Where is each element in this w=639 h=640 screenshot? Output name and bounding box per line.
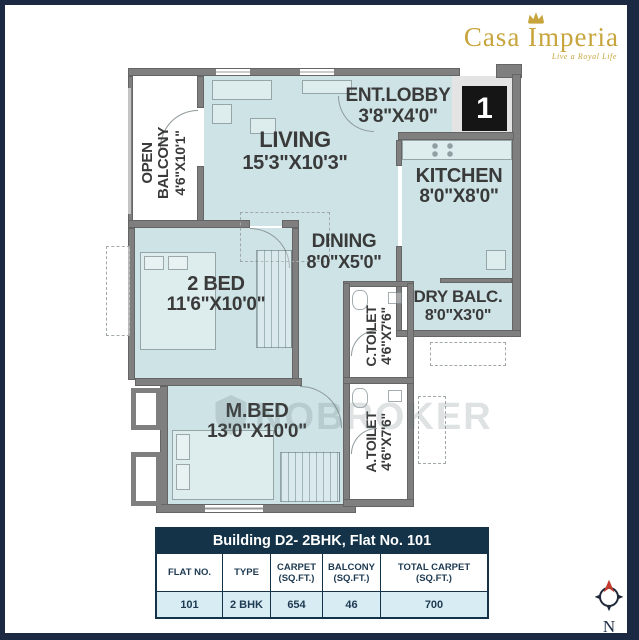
table-header-row: FLAT NO. TYPE CARPET (SQ.FT.) BALCONY (S… bbox=[157, 554, 487, 591]
table-title: Building D2- 2BHK, Flat No. 101 bbox=[157, 529, 487, 554]
wall-segment bbox=[343, 499, 414, 507]
room-dims: 3'8"X4'0" bbox=[328, 107, 468, 128]
unit-number-badge: 1 bbox=[462, 86, 507, 131]
room-name: ENT.LOBBY bbox=[328, 86, 468, 107]
window-segment bbox=[300, 69, 334, 75]
col-carpet: CARPET (SQ.FT.) bbox=[271, 554, 323, 591]
room-label-open-balcony: OPEN BALCONY 4'6"X10'1" bbox=[129, 108, 199, 218]
room-label-a-toilet: A.TOILET 4'6"X7'6" bbox=[359, 392, 399, 492]
room-dims: 8'0"X5'0" bbox=[284, 253, 404, 273]
val-total-carpet: 700 bbox=[381, 591, 487, 617]
furniture-armchair bbox=[212, 104, 232, 124]
room-dims: 15'3"X10'3" bbox=[215, 152, 375, 174]
stove-icon bbox=[428, 142, 458, 158]
compass: N bbox=[589, 578, 629, 637]
room-label-living: LIVING 15'3"X10'3" bbox=[215, 128, 375, 174]
furniture-pillow bbox=[176, 464, 190, 490]
room-passage bbox=[299, 286, 343, 386]
compass-icon bbox=[591, 601, 627, 618]
window-segment bbox=[216, 69, 250, 75]
col-flat-no: FLAT NO. bbox=[157, 554, 223, 591]
wall-segment bbox=[396, 330, 521, 337]
room-name: DINING bbox=[284, 232, 404, 253]
room-name: C.TOILET bbox=[364, 305, 379, 366]
room-dims: 11'6"X10'0" bbox=[136, 295, 296, 316]
page-frame: Casa Imperia Live a Royal Life bbox=[0, 0, 639, 640]
room-label-ent-lobby: ENT.LOBBY 3'8"X4'0" bbox=[328, 86, 468, 128]
duct-shaft bbox=[418, 396, 446, 464]
val-type: 2 BHK bbox=[223, 591, 271, 617]
room-label-c-toilet: C.TOILET 4'6"X7'6" bbox=[359, 286, 399, 386]
furniture-sofa bbox=[212, 80, 272, 100]
window-segment bbox=[205, 505, 263, 512]
col-balcony: BALCONY (SQ.FT.) bbox=[323, 554, 381, 591]
room-label-dining: DINING 8'0"X5'0" bbox=[284, 232, 404, 273]
room-dims: 4'6"X10'1" bbox=[173, 130, 188, 195]
room-label-mbed: M.BED 13'0"X10'0" bbox=[177, 400, 337, 443]
sink-icon bbox=[486, 250, 506, 270]
table-value-row: 101 2 BHK 654 46 700 bbox=[157, 591, 487, 617]
room-name: M.BED bbox=[177, 400, 337, 422]
duct-shaft bbox=[131, 388, 161, 430]
duct-shaft bbox=[131, 452, 161, 506]
window-projection bbox=[106, 246, 130, 336]
val-balcony: 46 bbox=[323, 591, 381, 617]
wall-segment bbox=[128, 68, 460, 76]
room-dims: 4'6"X7'6" bbox=[379, 413, 394, 471]
room-label-2bed: 2 BED 11'6"X10'0" bbox=[136, 273, 296, 316]
val-flat-no: 101 bbox=[157, 591, 223, 617]
room-name: KITCHEN bbox=[399, 165, 519, 187]
val-carpet: 654 bbox=[271, 591, 323, 617]
room-name: A.TOILET bbox=[364, 411, 379, 472]
duct-shaft bbox=[430, 342, 506, 366]
room-label-kitchen: KITCHEN 8'0"X8'0" bbox=[399, 165, 519, 208]
wall-segment bbox=[197, 76, 204, 108]
north-label: N bbox=[589, 617, 629, 637]
room-name: 2 BED bbox=[136, 273, 296, 295]
furniture-pillow bbox=[144, 256, 164, 270]
wall-segment bbox=[343, 283, 350, 507]
wall-segment bbox=[135, 378, 302, 386]
col-total-carpet: TOTAL CARPET (SQ.FT.) bbox=[381, 554, 487, 591]
room-dims: 4'6"X7'6" bbox=[379, 307, 394, 365]
wall-segment bbox=[398, 132, 514, 140]
wall-segment bbox=[160, 386, 168, 506]
room-name: DRY BALC. bbox=[398, 288, 518, 307]
room-dims: 8'0"X3'0" bbox=[398, 307, 518, 325]
wall-segment bbox=[440, 278, 512, 283]
room-label-dry-balcony: DRY BALC. 8'0"X3'0" bbox=[398, 288, 518, 324]
room-dims: 8'0"X8'0" bbox=[399, 187, 519, 208]
furniture-pillow bbox=[168, 256, 188, 270]
furniture-wardrobe bbox=[280, 452, 340, 502]
col-type: TYPE bbox=[223, 554, 271, 591]
room-name: LIVING bbox=[215, 128, 375, 152]
wall-segment bbox=[128, 220, 250, 228]
flat-info-table: Building D2- 2BHK, Flat No. 101 FLAT NO.… bbox=[155, 527, 489, 619]
room-dims: 13'0"X10'0" bbox=[177, 422, 337, 443]
room-name: OPEN BALCONY bbox=[140, 108, 173, 218]
